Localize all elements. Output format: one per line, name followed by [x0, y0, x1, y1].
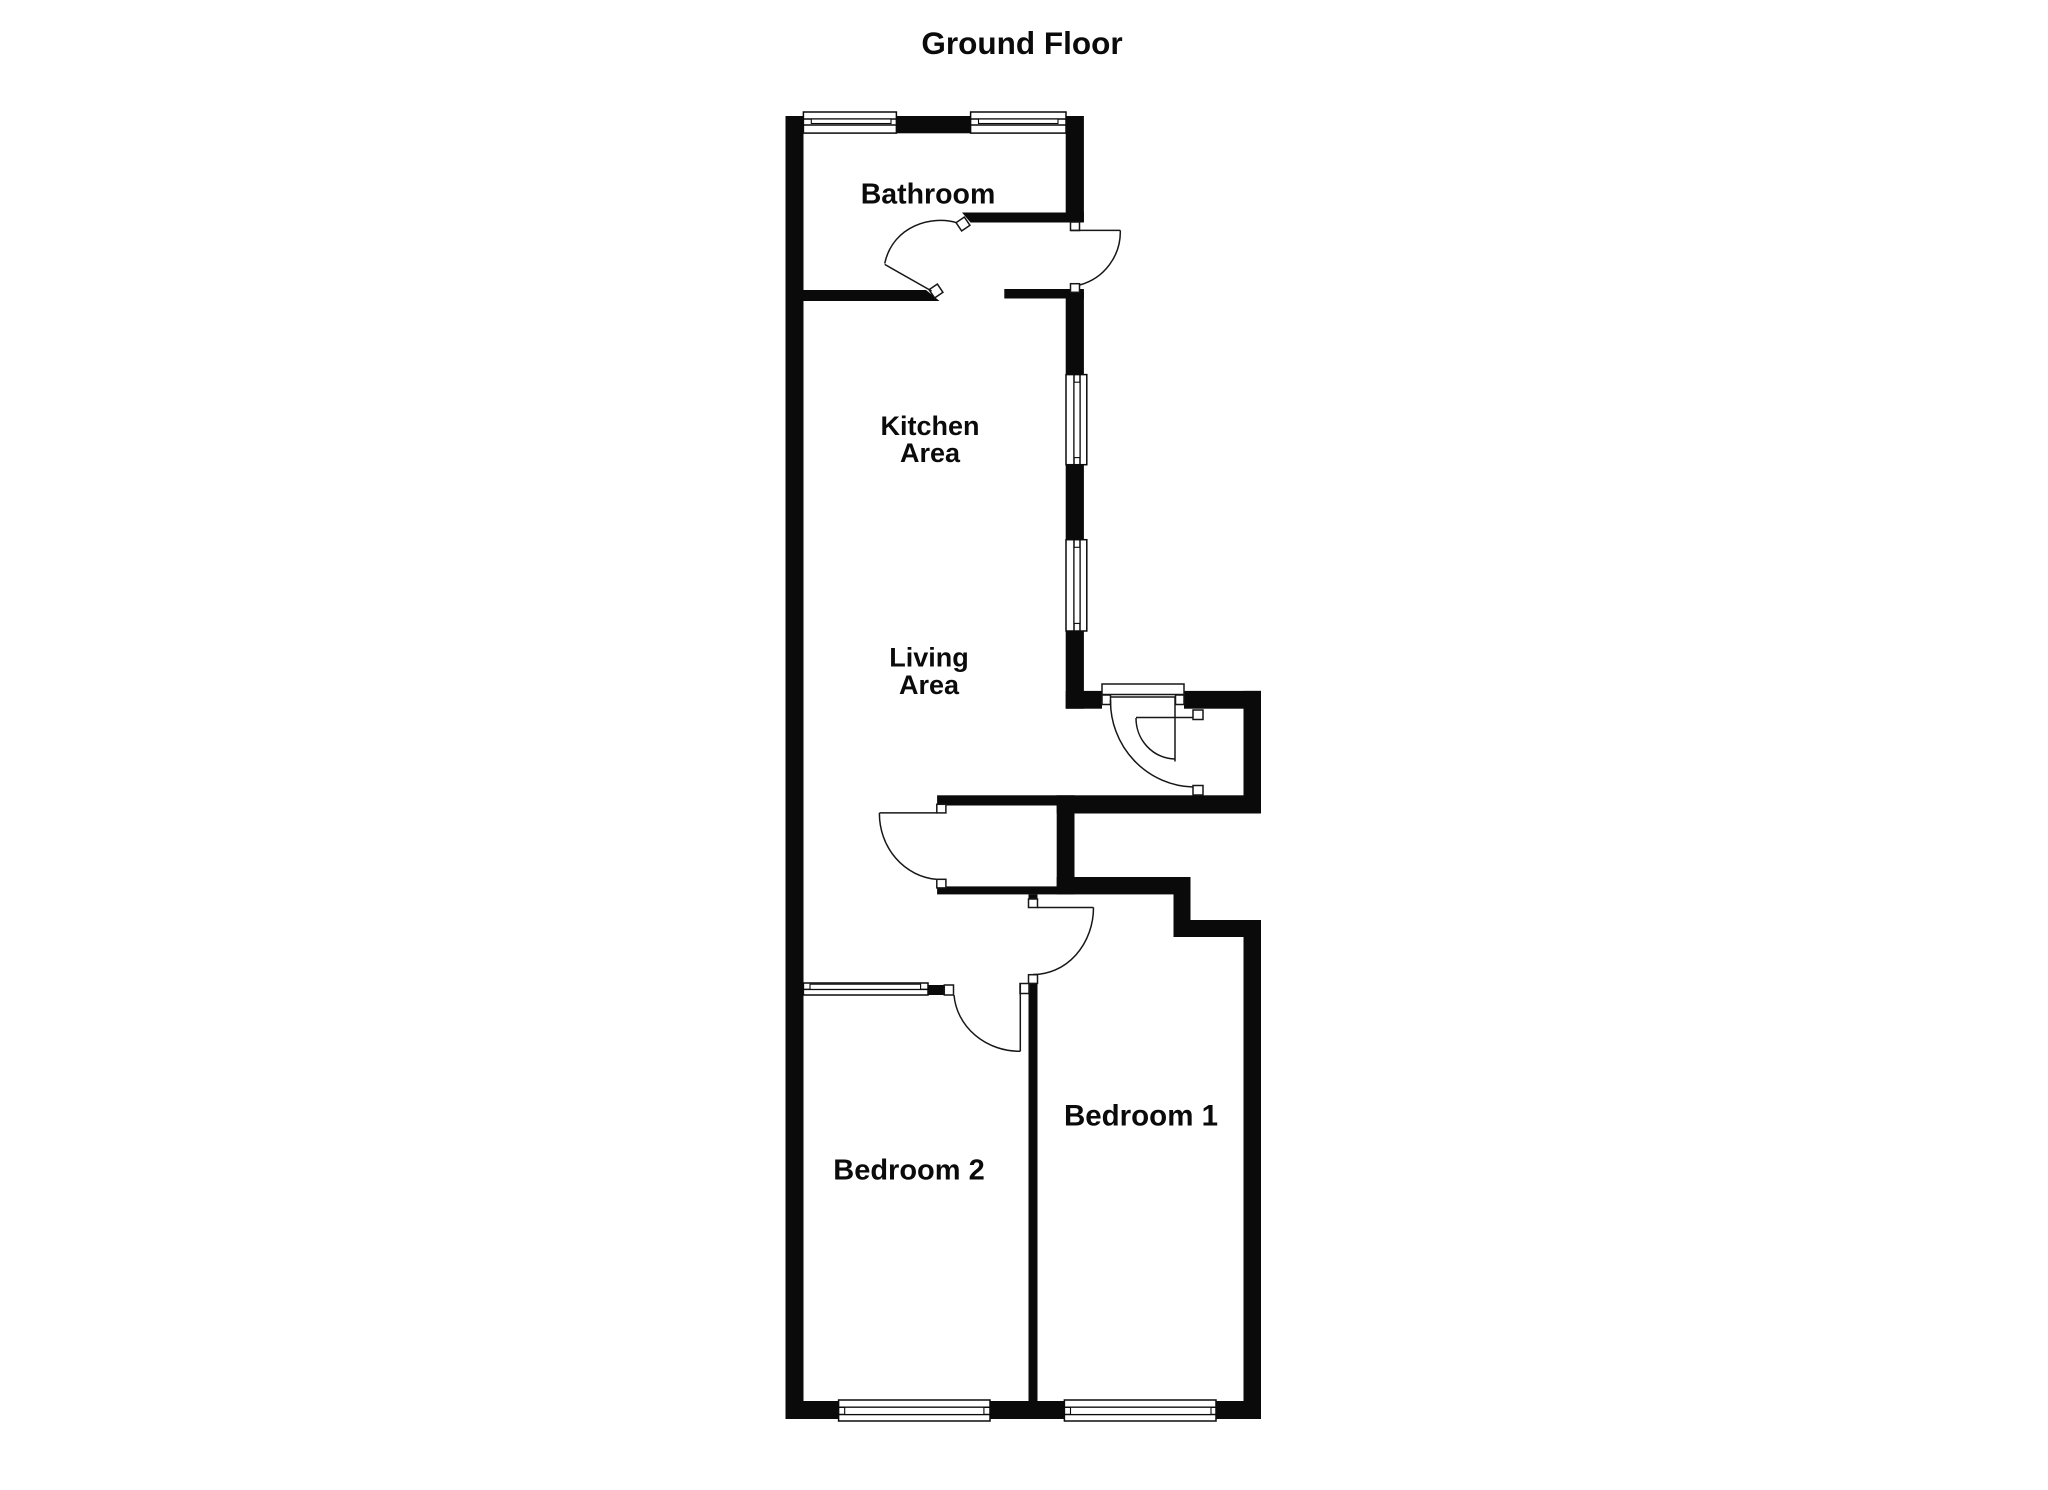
svg-text:Living: Living: [889, 643, 969, 673]
svg-text:Area: Area: [900, 438, 961, 468]
svg-text:Bedroom 2: Bedroom 2: [833, 1155, 984, 1187]
svg-text:Area: Area: [899, 670, 960, 700]
svg-text:Ground Floor: Ground Floor: [921, 25, 1122, 61]
svg-text:Kitchen: Kitchen: [880, 411, 979, 441]
svg-text:Bathroom: Bathroom: [861, 179, 996, 211]
svg-text:Bedroom 1: Bedroom 1: [1064, 1100, 1218, 1133]
